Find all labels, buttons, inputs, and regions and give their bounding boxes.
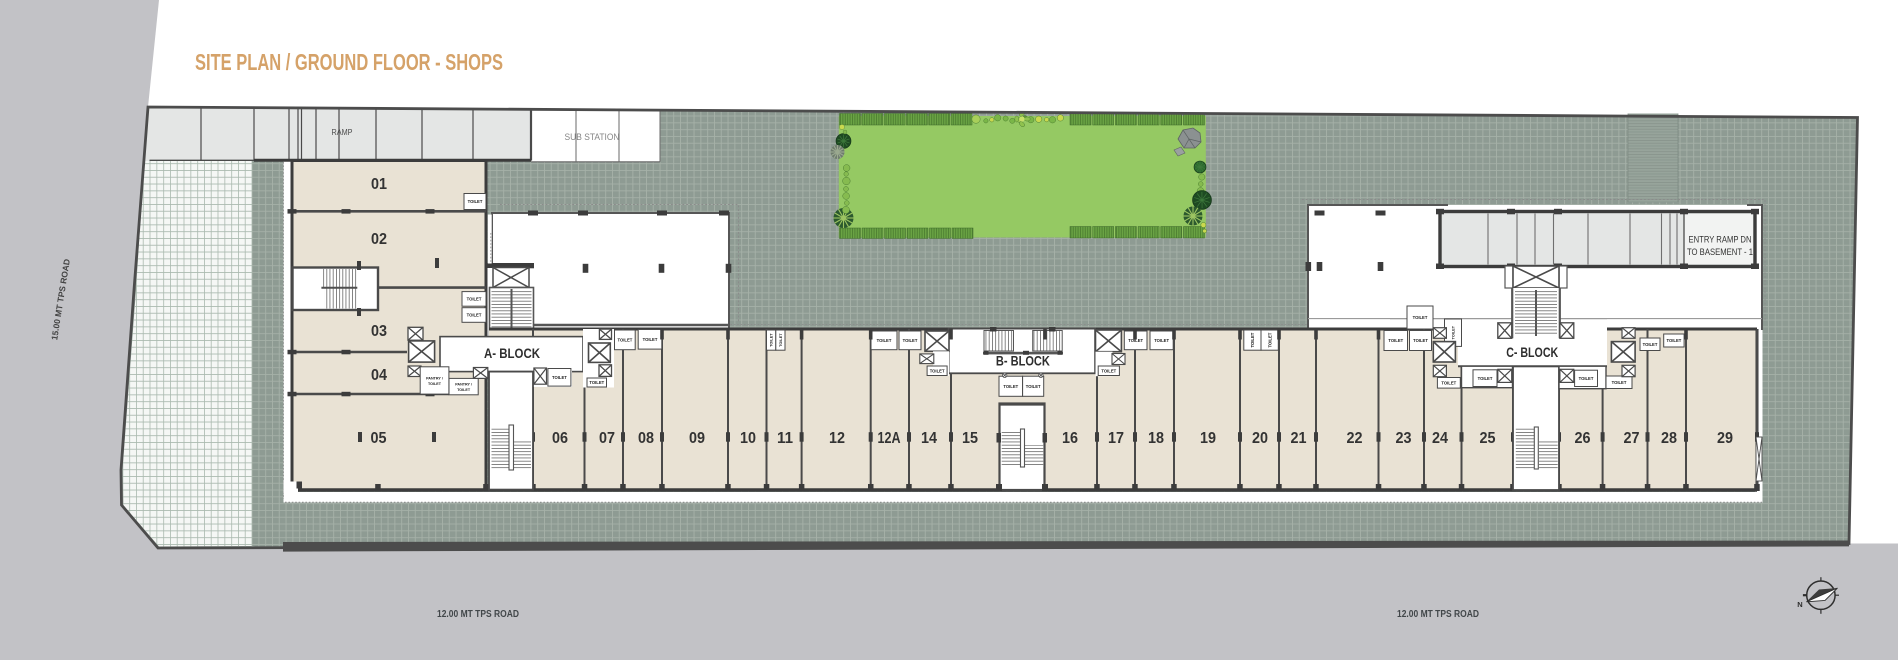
svg-text:12: 12	[829, 430, 845, 447]
svg-text:04: 04	[371, 367, 387, 384]
svg-text:TOILET: TOILET	[1666, 338, 1681, 343]
svg-text:12.00 MT TPS ROAD: 12.00 MT TPS ROAD	[437, 609, 519, 620]
svg-text:18: 18	[1148, 430, 1164, 447]
svg-text:TOILET: TOILET	[467, 313, 482, 318]
svg-text:TOILET: TOILET	[779, 333, 783, 347]
svg-text:27: 27	[1624, 430, 1640, 447]
svg-text:16: 16	[1062, 430, 1078, 447]
svg-text:C- BLOCK: C- BLOCK	[1506, 345, 1558, 360]
svg-text:TOILET: TOILET	[1026, 384, 1041, 389]
svg-text:09: 09	[689, 430, 705, 447]
svg-text:TOILET: TOILET	[1452, 325, 1456, 339]
svg-text:SITE PLAN / GROUND FLOOR - SHO: SITE PLAN / GROUND FLOOR - SHOPS	[195, 49, 503, 75]
svg-text:24: 24	[1432, 430, 1448, 447]
svg-text:28: 28	[1661, 430, 1677, 447]
svg-text:17: 17	[1108, 430, 1124, 447]
svg-text:TOILET: TOILET	[428, 382, 442, 386]
svg-text:TOILET: TOILET	[1478, 376, 1493, 381]
svg-text:01: 01	[371, 176, 387, 193]
svg-text:05: 05	[371, 430, 387, 447]
svg-text:TO BASEMENT - 1: TO BASEMENT - 1	[1687, 247, 1753, 257]
svg-text:PANTRY /: PANTRY /	[455, 383, 472, 387]
svg-text:12A: 12A	[878, 430, 901, 447]
svg-text:A- BLOCK: A- BLOCK	[484, 345, 540, 361]
svg-text:26: 26	[1575, 430, 1591, 447]
svg-text:10: 10	[740, 430, 756, 447]
svg-text:TOILET: TOILET	[1154, 338, 1169, 343]
svg-text:07: 07	[599, 430, 615, 447]
svg-text:15: 15	[962, 430, 978, 447]
svg-text:06: 06	[552, 430, 568, 447]
svg-text:TOILET: TOILET	[1267, 332, 1272, 347]
svg-text:TOILET: TOILET	[617, 338, 632, 343]
svg-text:ENTRY RAMP DN: ENTRY RAMP DN	[1689, 235, 1752, 245]
svg-text:23: 23	[1396, 430, 1412, 447]
svg-text:02: 02	[371, 231, 387, 248]
svg-text:RAMP: RAMP	[332, 128, 353, 137]
svg-text:TOILET: TOILET	[1643, 342, 1658, 347]
svg-text:TOILET: TOILET	[1612, 380, 1627, 385]
svg-text:TOILET: TOILET	[1413, 338, 1428, 343]
svg-text:25: 25	[1480, 430, 1496, 447]
svg-text:SUB STATION: SUB STATION	[565, 132, 620, 142]
svg-text:TOILET: TOILET	[468, 199, 483, 204]
svg-text:B- BLOCK: B- BLOCK	[996, 353, 1050, 369]
svg-text:TOILET: TOILET	[1413, 315, 1428, 320]
svg-text:TOILET: TOILET	[457, 388, 471, 392]
svg-text:TOILET: TOILET	[1388, 338, 1403, 343]
svg-text:08: 08	[638, 430, 654, 447]
svg-text:22: 22	[1347, 430, 1363, 447]
svg-text:20: 20	[1252, 430, 1268, 447]
svg-text:TOILET: TOILET	[903, 338, 918, 343]
svg-text:TOILET: TOILET	[770, 333, 774, 347]
svg-text:03: 03	[371, 323, 387, 340]
svg-text:29: 29	[1717, 430, 1733, 447]
svg-text:TOILET: TOILET	[589, 380, 604, 385]
svg-text:TOILET: TOILET	[877, 338, 892, 343]
svg-text:TOILET: TOILET	[1003, 384, 1018, 389]
svg-text:TOILET: TOILET	[467, 297, 482, 302]
svg-text:TOILET: TOILET	[552, 375, 567, 380]
svg-text:TOILET: TOILET	[1579, 376, 1594, 381]
svg-text:PANTRY /: PANTRY /	[426, 377, 443, 381]
svg-text:21: 21	[1291, 430, 1307, 447]
svg-text:11: 11	[777, 430, 793, 447]
svg-text:14: 14	[921, 430, 937, 447]
svg-text:TOILET: TOILET	[1250, 332, 1255, 347]
svg-text:TOILET: TOILET	[643, 337, 658, 342]
svg-text:TOILET: TOILET	[930, 368, 945, 373]
svg-text:TOILET: TOILET	[1101, 368, 1116, 373]
svg-text:12.00 MT TPS ROAD: 12.00 MT TPS ROAD	[1397, 609, 1479, 620]
svg-text:N: N	[1797, 600, 1802, 609]
svg-text:19: 19	[1200, 430, 1216, 447]
svg-text:TOILET: TOILET	[1441, 381, 1456, 386]
